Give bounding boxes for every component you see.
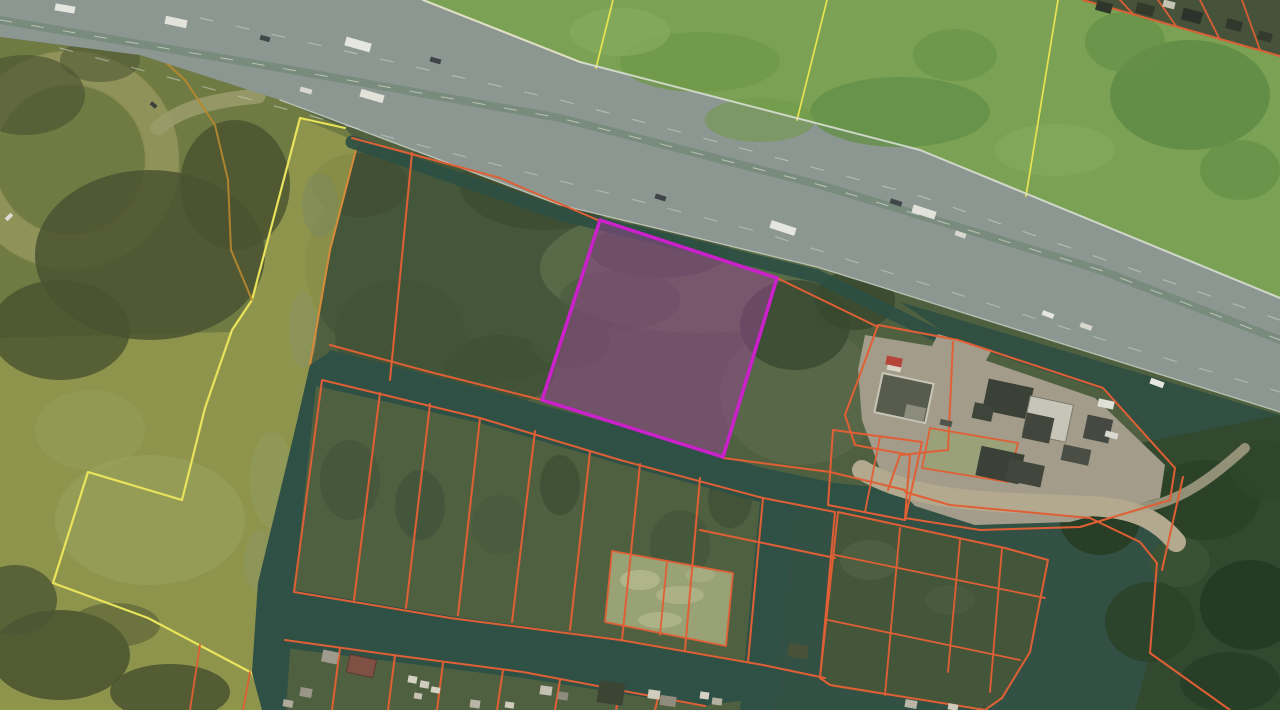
house xyxy=(712,697,723,705)
field-texture xyxy=(570,8,670,56)
garden-texture xyxy=(685,568,715,582)
scrub-trees xyxy=(925,585,975,615)
house xyxy=(469,699,480,708)
house xyxy=(539,685,552,696)
zone-grass xyxy=(302,173,338,237)
scrub-trees xyxy=(540,455,580,515)
field-texture xyxy=(705,98,815,142)
scrub-trees xyxy=(840,540,900,580)
field-texture xyxy=(995,124,1115,176)
forest-trees xyxy=(1180,652,1280,710)
scrub-trees xyxy=(472,495,528,555)
field-texture xyxy=(913,29,997,81)
map-viewport xyxy=(0,0,1280,710)
field-texture xyxy=(1200,140,1280,200)
zone-trees xyxy=(70,603,160,647)
house xyxy=(597,680,626,705)
zone-grass xyxy=(289,292,317,368)
garden-texture xyxy=(620,570,660,590)
zone-grass xyxy=(55,455,245,585)
house xyxy=(505,701,515,708)
scrub-trees xyxy=(320,440,380,520)
field-texture xyxy=(810,77,990,147)
zone-grass xyxy=(35,390,145,470)
zone-trees xyxy=(180,120,290,250)
house xyxy=(557,691,568,700)
field-texture xyxy=(1085,12,1165,72)
house xyxy=(647,689,660,700)
house xyxy=(700,691,710,699)
map-canvas[interactable] xyxy=(0,0,1280,710)
